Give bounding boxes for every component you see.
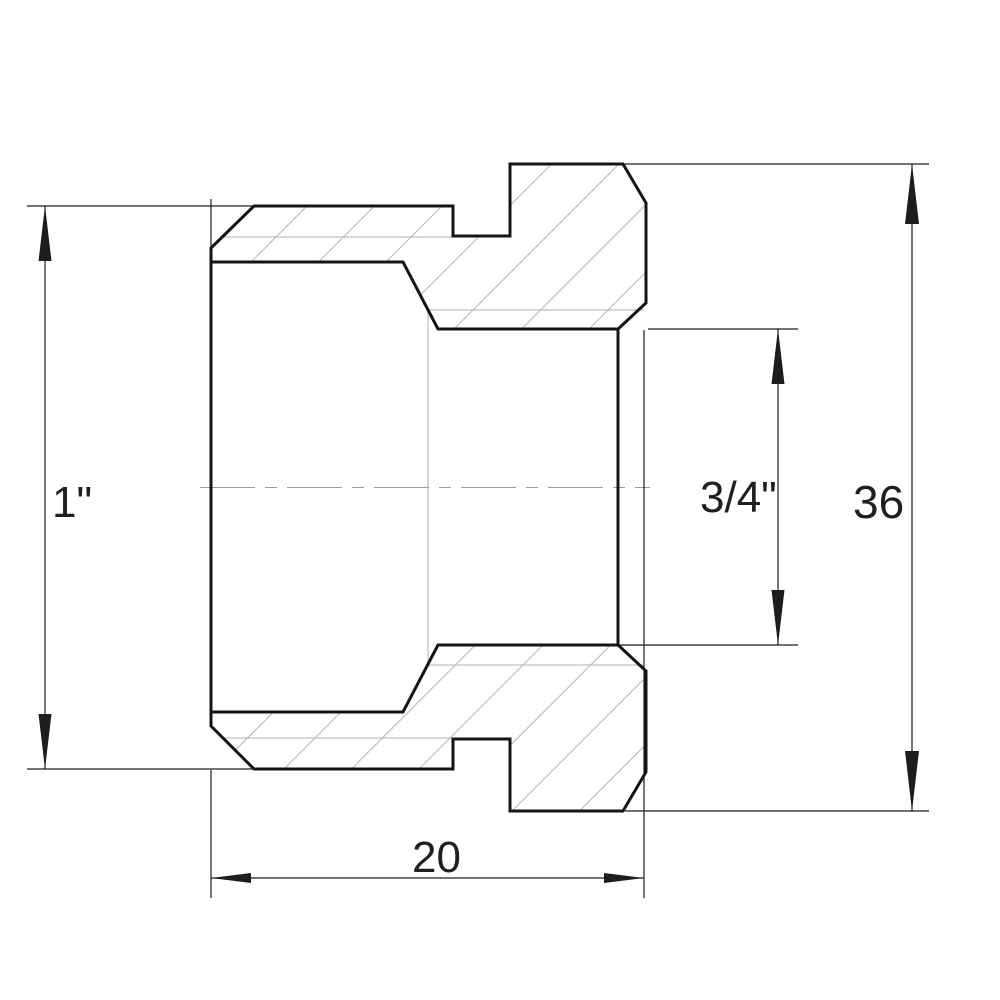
hatch-line <box>618 150 1000 840</box>
dimension-arrowhead <box>905 164 919 224</box>
dimension-arrowhead <box>772 329 785 384</box>
hatch-line <box>213 150 903 840</box>
section-hatching <box>0 150 1000 840</box>
dimension-3-4-inch: 3/4" <box>700 329 785 645</box>
extension-lines <box>27 164 929 898</box>
dimension-20: 20 <box>211 833 644 883</box>
hatch-line <box>11 150 701 840</box>
technical-drawing-canvas: 1"3/4"3620 <box>0 0 1000 1000</box>
technical-drawing-page: 1"3/4"3620 <box>0 0 1000 1000</box>
dimension-1-inch: 1" <box>39 206 93 769</box>
dimension-arrowhead <box>39 206 52 261</box>
dimension-label: 20 <box>412 833 461 882</box>
dimension-arrowhead <box>39 714 52 769</box>
dimension-label: 1" <box>52 478 92 527</box>
dimension-arrowhead <box>905 751 919 811</box>
dimension-36: 36 <box>853 164 919 811</box>
dimension-arrowhead <box>604 873 644 883</box>
dimension-arrowhead <box>772 590 785 645</box>
dimension-arrowhead <box>211 873 251 883</box>
dimension-label: 36 <box>853 476 904 528</box>
hatch-line <box>78 150 768 840</box>
dimension-label: 3/4" <box>700 473 777 522</box>
